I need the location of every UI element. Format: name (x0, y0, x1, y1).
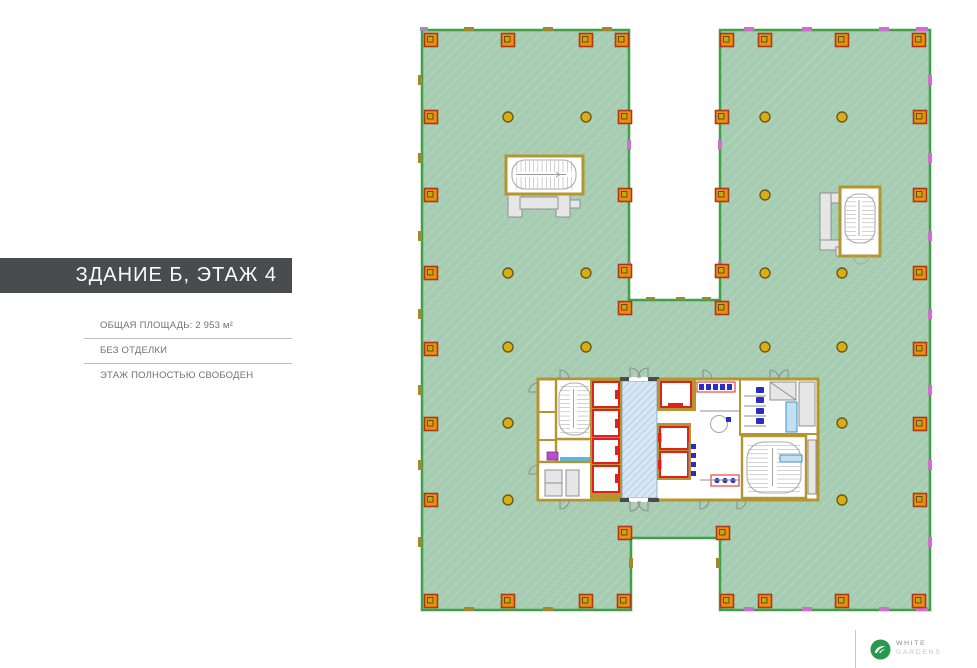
brand-logo: WHITE GARDENS (855, 629, 942, 668)
core-stairwell-left (556, 379, 593, 439)
sink-purple (547, 452, 558, 460)
stairwell-northwest (506, 156, 583, 217)
core-elevator-lobby (620, 368, 659, 511)
title-bar: ЗДАНИЕ Б, ЭТАЖ 4 (0, 258, 292, 293)
logo-separator (855, 630, 856, 668)
shaft-blue (786, 402, 797, 432)
core-stairwell-right (740, 434, 818, 498)
logo-text: WHITE GARDENS (896, 640, 942, 658)
info-row-finishing: БЕЗ ОТДЕЛКИ (84, 338, 292, 363)
floor-outline (422, 30, 930, 610)
central-core (529, 368, 818, 511)
page: ЗДАНИЕ Б, ЭТАЖ 4 ОБЩАЯ ПЛОЩАДЬ: 2 953 м²… (0, 0, 977, 668)
logo-line1: WHITE (896, 640, 942, 649)
white-gardens-leaf-icon (870, 639, 891, 660)
info-panel: ОБЩАЯ ПЛОЩАДЬ: 2 953 м² БЕЗ ОТДЕЛКИ ЭТАЖ… (84, 314, 292, 388)
logo-line2: GARDENS (896, 649, 942, 658)
info-row-availability: ЭТАЖ ПОЛНОСТЬЮ СВОБОДЕН (84, 363, 292, 388)
info-row-total-area: ОБЩАЯ ПЛОЩАДЬ: 2 953 м² (84, 314, 292, 338)
page-title: ЗДАНИЕ Б, ЭТАЖ 4 (76, 264, 292, 287)
counter-cyan (560, 457, 591, 461)
core-elevators-left (590, 379, 622, 500)
